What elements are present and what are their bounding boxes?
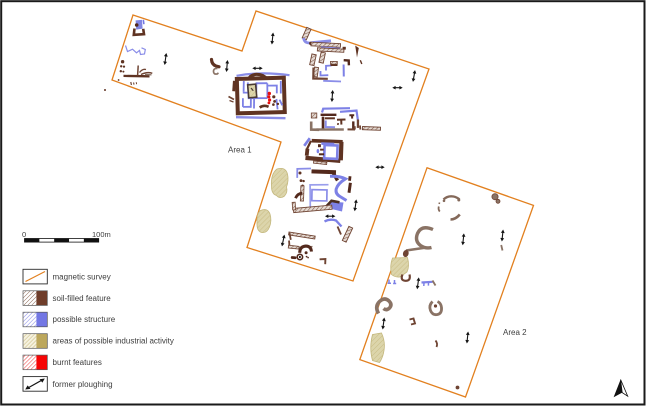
svg-text:possible structure: possible structure <box>53 315 116 324</box>
svg-text:soil-filled feature: soil-filled feature <box>53 294 112 303</box>
svg-text:former ploughing: former ploughing <box>53 380 113 389</box>
svg-text:burnt features: burnt features <box>53 358 102 367</box>
svg-text:Area 1: Area 1 <box>228 146 252 155</box>
svg-text:areas of possible industrial a: areas of possible industrial activity <box>53 337 174 346</box>
svg-text:0: 0 <box>22 230 26 239</box>
svg-text:magnetic survey: magnetic survey <box>53 272 111 281</box>
svg-text:100m: 100m <box>92 230 111 239</box>
svg-text:Area 2: Area 2 <box>503 328 527 337</box>
